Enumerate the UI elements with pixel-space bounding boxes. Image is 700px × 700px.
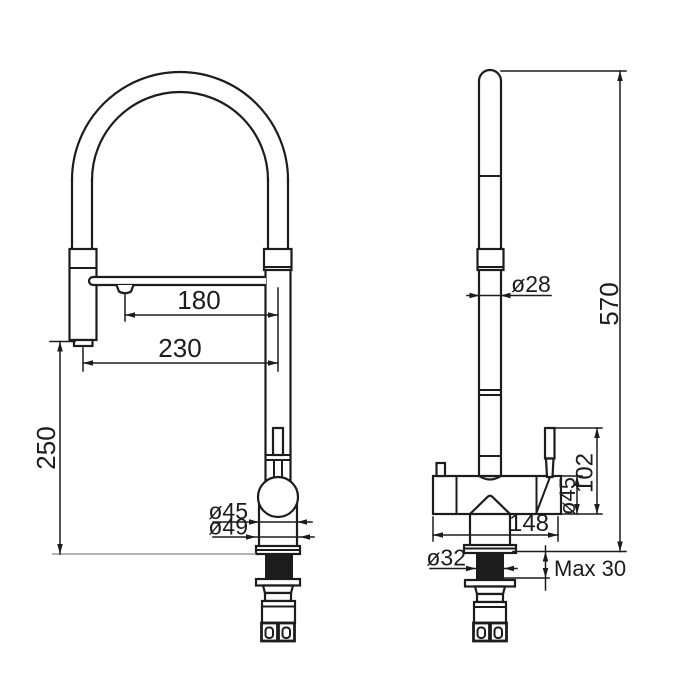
connector-block-side [474, 602, 506, 623]
support-arm [89, 277, 266, 285]
ball-joint [258, 477, 298, 517]
faucet-drawing: 180 230 250 ø45 [0, 0, 700, 700]
dim-label-side-dia45: ø45 [555, 477, 580, 515]
dim-label-dia49: ø49 [208, 514, 248, 540]
diverter-knob [437, 463, 446, 476]
dim-label-148: 148 [509, 510, 549, 537]
dim-label-180: 180 [177, 285, 220, 315]
dim-front-250: 250 [31, 342, 75, 555]
technical-drawing-canvas: 180 230 250 ø45 [0, 0, 700, 700]
dim-front-230: 230 [83, 333, 278, 371]
dim-side-max30: Max 30 [543, 546, 626, 590]
aerator [117, 285, 134, 293]
lever-handle [273, 428, 283, 455]
dim-label-250: 250 [31, 426, 61, 469]
spray-head-body [70, 249, 97, 340]
front-view: 180 230 250 ø45 [31, 72, 314, 641]
connector-block [262, 601, 295, 623]
spray-head-nozzle [74, 340, 93, 346]
handle-stick [545, 428, 555, 459]
threaded-shank [265, 554, 293, 579]
threaded-shank-side [476, 553, 504, 580]
side-view: ø28 570 102 ø45 [426, 70, 626, 641]
dim-label-230: 230 [158, 333, 201, 363]
riser-column [479, 70, 501, 476]
dim-label-max30: Max 30 [554, 556, 626, 581]
handle-joint [546, 459, 554, 478]
dim-side-dia45: ø45 [555, 476, 582, 515]
dim-front-dia49: ø49 [208, 514, 314, 540]
dim-label-dia32: ø32 [426, 545, 466, 571]
arch-inner [92, 92, 268, 180]
arch-outer [72, 72, 288, 180]
dim-label-570: 570 [594, 282, 624, 325]
dim-label-dia28: ø28 [511, 271, 551, 297]
mixer-body [433, 476, 561, 514]
